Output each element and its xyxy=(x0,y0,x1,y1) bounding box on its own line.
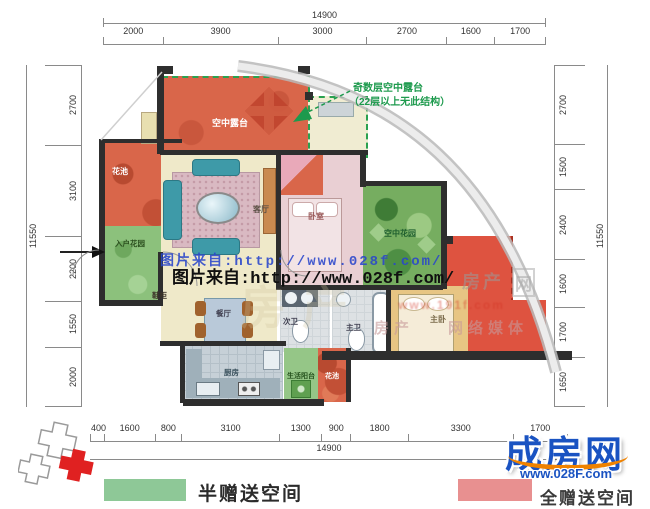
dim-left-total: 11550 xyxy=(26,65,45,407)
dim-segment: 1300 xyxy=(280,434,322,441)
dim-right-total: 11550 xyxy=(585,65,608,407)
dim-segment: 1800 xyxy=(351,434,409,441)
label-shoe-cabinet: 鞋柜 xyxy=(152,290,167,301)
dim-segment: 2000 xyxy=(103,37,164,44)
keyplan-unit-outline xyxy=(18,452,52,486)
site-logo-url: www.028F.com xyxy=(520,466,612,481)
dim-top-segments: 200039003000270016001700 xyxy=(103,24,546,45)
label-flower-pond-bottom: 花池 xyxy=(325,371,339,381)
watermark-faint-fangchan: 房产 xyxy=(462,268,504,294)
dim-segment: 3900 xyxy=(164,37,279,44)
dim-segment: 1700 xyxy=(495,37,546,44)
kitchen-sink xyxy=(196,382,220,396)
coffee-table xyxy=(196,192,240,224)
wall xyxy=(157,66,173,74)
dim-segment: 3300 xyxy=(409,434,514,441)
wall xyxy=(443,236,453,244)
dim-segment: 2400 xyxy=(555,190,585,261)
dim-segment: 3100 xyxy=(45,146,81,237)
label-bedroom: 卧室 xyxy=(308,211,324,222)
sofa-top xyxy=(192,159,240,176)
dim-segment: 2700 xyxy=(555,65,585,145)
legend-label-half-gift: 半赠送空间 xyxy=(198,479,303,506)
wall xyxy=(99,139,182,143)
label-flower-pond-left: 花池 xyxy=(112,166,128,177)
dim-segment: 1650 xyxy=(555,358,585,407)
dim-segment: 2700 xyxy=(45,65,81,146)
label-master-bedroom: 主卧 xyxy=(430,314,446,325)
annotation-line2: （22层以上无此结构） xyxy=(349,93,450,108)
dim-chain-bottom: 400160080031001300900180033001700 14900 xyxy=(90,421,568,460)
label-dining-room: 餐厅 xyxy=(216,308,231,319)
watermark-faint-media: 网络媒体 xyxy=(448,317,528,338)
dim-segment: 800 xyxy=(156,434,182,441)
dim-segment: 2000 xyxy=(45,348,81,407)
dim-segment: 2200 xyxy=(45,237,81,302)
dining-chair xyxy=(195,301,206,316)
wall xyxy=(183,399,324,406)
dim-segment: 1550 xyxy=(45,302,81,348)
label-utility-balcony: 生活阳台 xyxy=(287,371,315,381)
dim-chain-top: 14900 200039003000270016001700 xyxy=(103,5,546,45)
dim-segment: 2700 xyxy=(367,37,447,44)
wall xyxy=(160,341,286,346)
watermark-faint-fangchan2: 房产 xyxy=(374,317,414,338)
dim-segment: 3100 xyxy=(182,434,280,441)
dim-bottom-total: 14900 xyxy=(90,442,568,460)
fridge xyxy=(263,350,280,370)
dim-segment: 1600 xyxy=(447,37,495,44)
floorplan-page: { "dims": { "top": {"total": "14900", "s… xyxy=(0,0,650,509)
kitchen-counter-side xyxy=(186,349,202,378)
wall xyxy=(99,139,105,306)
wall xyxy=(160,150,368,155)
wall xyxy=(363,181,447,186)
wall xyxy=(322,351,572,360)
bedroom-closet xyxy=(279,155,323,195)
label-living-room: 客厅 xyxy=(253,204,269,215)
watermark-faint-wang: 网 xyxy=(512,268,535,297)
legend-label-full-gift: 全赠送空间 xyxy=(540,484,635,509)
watermark-photo-credit-black: 图片来自:http://www.028f.com/ xyxy=(172,263,454,289)
dim-top-total: 14900 xyxy=(103,5,546,24)
dim-segment: 900 xyxy=(322,434,351,441)
dim-chain-left: 11550 27003100220015502000 xyxy=(26,65,82,407)
washer xyxy=(291,380,311,398)
annotation-line1: 奇数层空中露台 xyxy=(353,79,423,94)
label-kitchen: 厨房 xyxy=(224,367,239,378)
label-entry-garden: 入户花园 xyxy=(115,238,145,249)
dim-segment: 1500 xyxy=(555,145,585,190)
dining-chair xyxy=(195,323,206,338)
label-sky-garden: 空中花园 xyxy=(384,228,416,239)
sofa-left xyxy=(163,180,182,240)
tv-bench xyxy=(263,168,276,234)
dim-segment: 3000 xyxy=(279,37,368,44)
legend-swatch-half-gift xyxy=(104,479,186,501)
dim-left-segments: 27003100220015502000 xyxy=(45,65,82,407)
wall xyxy=(305,92,313,100)
dim-bottom-segments: 400160080031001300900180033001700 xyxy=(90,421,568,442)
dim-segment: 1600 xyxy=(555,260,585,307)
building-key-plan xyxy=(18,418,118,508)
wall xyxy=(360,153,366,187)
wall xyxy=(180,345,185,403)
wall xyxy=(298,66,310,74)
watermark-faint-url: www.191f.com xyxy=(398,298,505,312)
label-sky-terrace: 空中露台 xyxy=(212,116,248,129)
legend-swatch-full-gift xyxy=(458,479,532,501)
kitchen-stove xyxy=(238,382,260,396)
